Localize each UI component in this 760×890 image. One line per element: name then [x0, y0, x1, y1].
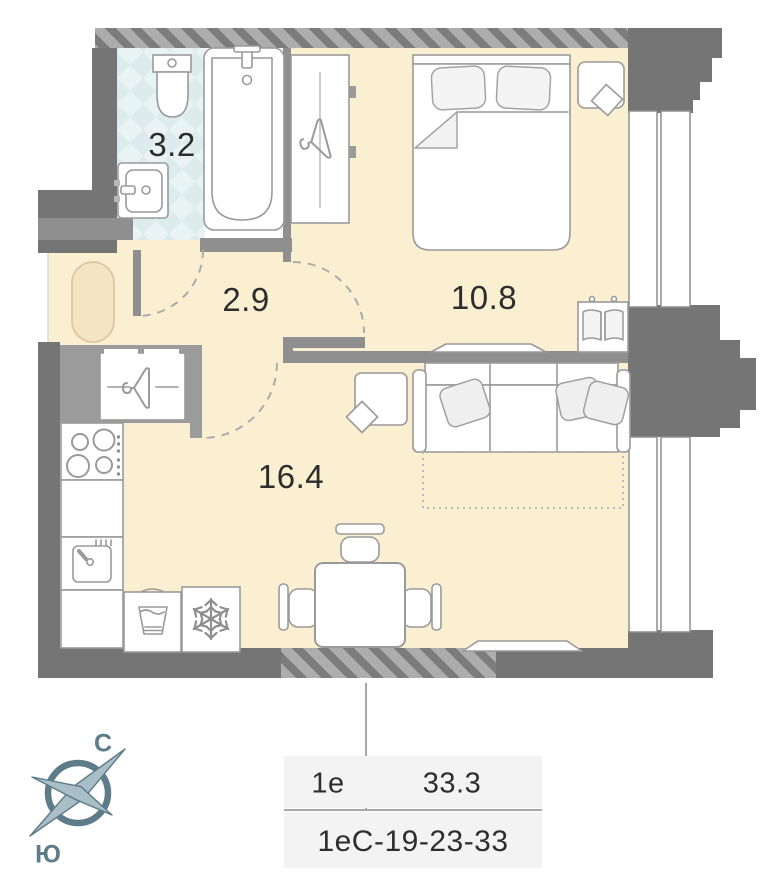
compass-rose-icon [30, 749, 125, 836]
washing-machine-icon [124, 589, 181, 652]
tv-icon [463, 641, 582, 651]
hallway-area-label: 2.9 [222, 281, 269, 319]
nightstand-icon [578, 62, 624, 116]
counter [61, 480, 123, 537]
rug-icon [72, 262, 114, 342]
toilet-icon [153, 55, 191, 117]
tv-icon [431, 344, 546, 352]
counter [61, 590, 123, 648]
compass-south-label: Ю [35, 841, 61, 870]
side-table-icon [346, 373, 407, 433]
top-exterior-wall [95, 28, 628, 48]
washbasin-icon [114, 163, 168, 218]
bathtub-icon [204, 46, 284, 230]
pillow-icon [496, 66, 551, 111]
bedroom-area-label: 10.8 [451, 279, 517, 317]
bathroom-area-label: 3.2 [148, 126, 195, 164]
chair-icon [432, 584, 441, 630]
compass-north-label: С [94, 730, 112, 759]
wardrobe [100, 349, 185, 420]
pillar-middle-right [628, 305, 756, 437]
bathroom-wall [38, 218, 133, 240]
unit-type-value: 1е [311, 768, 344, 801]
bedroom-door-leaf [293, 337, 365, 348]
sofa-icon [413, 363, 630, 452]
closet [291, 55, 356, 223]
book-shelf-icon [578, 297, 628, 353]
total-area-value: 33.3 [423, 768, 481, 801]
pillar-bottom-right [628, 630, 713, 678]
chair-icon [336, 524, 384, 534]
dining-table-icon [315, 563, 405, 647]
unit-code-value: 1еС-19-23-33 [317, 825, 508, 859]
bed-icon [413, 55, 570, 250]
pillow-icon [431, 66, 486, 111]
snowflake-fridge-icon [182, 587, 240, 652]
pillar-top-right [628, 28, 722, 113]
floorplan-canvas: 3.2 2.9 10.8 16.4 С Ю 1е 33.3 1еС-19-23-… [0, 0, 760, 890]
living-kitchen-area-label: 16.4 [258, 458, 324, 496]
bathroom-door-leaf [133, 250, 141, 316]
chair-icon [279, 584, 288, 630]
bottom-wall-hatch [281, 648, 496, 678]
outside-mask [40, 44, 92, 190]
